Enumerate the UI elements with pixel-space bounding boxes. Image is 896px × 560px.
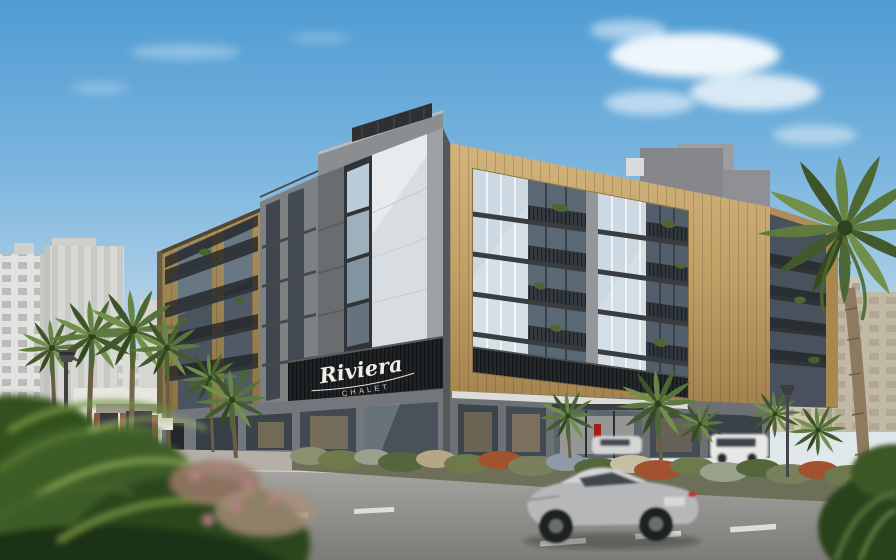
- scene-canvas: Riviera CHALET: [0, 0, 896, 560]
- architectural-render-riviera-chalet: Riviera CHALET: [0, 0, 896, 560]
